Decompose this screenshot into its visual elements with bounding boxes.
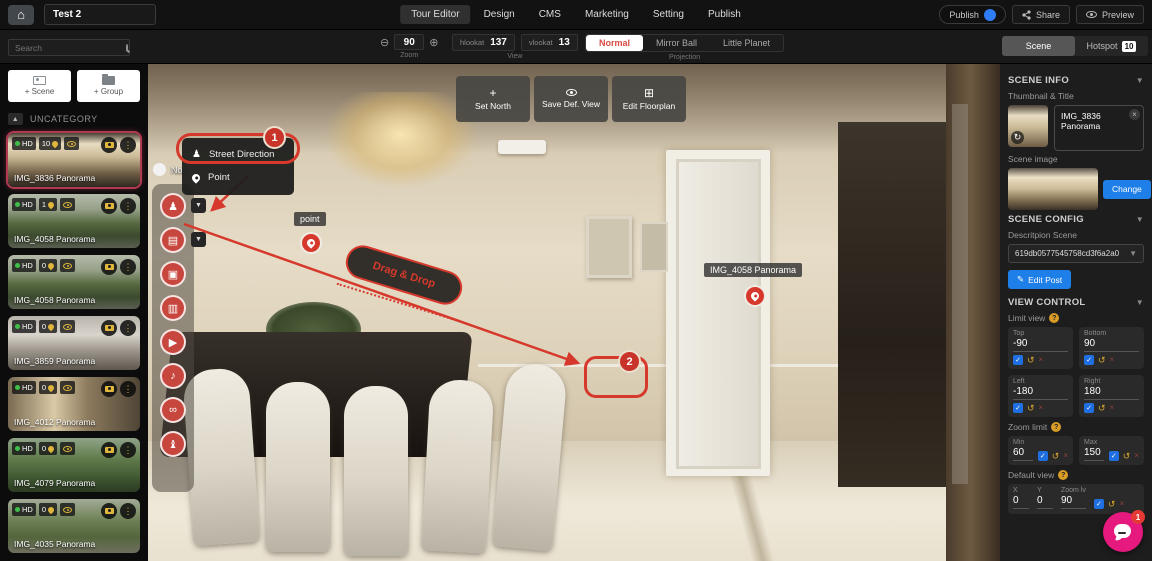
projection-mirror-ball[interactable]: Mirror Ball: [643, 35, 710, 51]
set-north-button[interactable]: +Set North: [456, 76, 530, 122]
default-view-text: Default view: [1008, 470, 1054, 480]
default-view-label: Y: [1037, 487, 1053, 494]
share-button[interactable]: Share: [1012, 5, 1070, 24]
floorplan-icon: ⊞: [644, 88, 654, 98]
hd-badge: HD: [12, 137, 36, 150]
view-control-title: VIEW CONTROL: [1008, 297, 1086, 308]
remove-icon[interactable]: ×: [1134, 452, 1139, 460]
point-label: Point: [208, 172, 230, 183]
checkbox-checked-icon[interactable]: ✓: [1038, 451, 1048, 461]
scene-list: HD10⋮IMG_3836 PanoramaHD1⋮IMG_4058 Panor…: [8, 133, 140, 553]
limit-view-text: Limit view: [1008, 313, 1045, 323]
eye-icon: [63, 385, 72, 391]
scene-card[interactable]: HD0⋮IMG_4012 Panorama: [8, 377, 140, 431]
limit-right: Right180✓↺×: [1079, 375, 1144, 417]
description-post-select[interactable]: 619db0577545758cd3f6a2a0 ▼: [1008, 244, 1144, 263]
set-cover-button[interactable]: [101, 381, 117, 397]
limit-label: Right: [1084, 378, 1139, 385]
eye-icon: [63, 507, 72, 513]
checkbox-checked-icon[interactable]: ✓: [1013, 355, 1023, 365]
scene-card-actions: ⋮: [101, 442, 136, 458]
zoom-limit-min: Min60✓↺×: [1008, 436, 1073, 465]
point-menu-item[interactable]: Point: [182, 166, 294, 189]
product-hotspot-icon[interactable]: ♝: [160, 431, 186, 457]
save-def-view-button[interactable]: Save Def. View: [534, 76, 608, 122]
eye-icon: [63, 324, 72, 330]
scene-link-label: IMG_4058 Panorama: [704, 263, 802, 277]
zoom-group: ⊖ 90 ⊕ Zoom: [380, 34, 438, 59]
street-direction-hotspot: ♟▼: [160, 193, 186, 219]
scene-card-actions: ⋮: [101, 198, 136, 214]
home-button[interactable]: ⌂: [8, 5, 34, 25]
panorama-ac-unit: [498, 140, 546, 154]
camera-icon: [105, 142, 114, 148]
tour-title-input[interactable]: [44, 4, 156, 25]
limit-bottom: Bottom90✓↺×: [1079, 327, 1144, 369]
limit-actions: ✓↺×: [1013, 355, 1068, 365]
vlookat-value: 13: [559, 37, 570, 48]
tab-cms[interactable]: CMS: [528, 5, 572, 24]
product-hotspot: ♝: [160, 431, 186, 457]
image-hotspot: ▣: [160, 261, 186, 287]
hotspot-count-badge: 10: [39, 137, 61, 150]
scene-menu-button[interactable]: ⋮: [120, 503, 136, 519]
set-cover-button[interactable]: [101, 137, 117, 153]
hotspot-count-badge: 0: [39, 320, 57, 333]
help-icon[interactable]: ?: [1058, 470, 1068, 480]
share-icon: [1022, 10, 1031, 20]
chat-bubble-icon: [1114, 524, 1131, 538]
scene-name: IMG_4058 Panorama: [14, 234, 95, 244]
hd-badge: HD: [12, 259, 36, 272]
zoom-limit-label: Zoom limit ?: [1008, 422, 1144, 432]
link-hotspot: ∞: [160, 397, 186, 423]
hd-badge: HD: [12, 442, 36, 455]
panorama-chair: [344, 386, 408, 556]
image-hotspot-icon[interactable]: ▣: [160, 261, 186, 287]
limit-value-input[interactable]: -90: [1013, 337, 1068, 352]
eye-icon: [63, 263, 72, 269]
panorama-mirror: [952, 104, 968, 484]
limit-top: Top-90✓↺×: [1008, 327, 1073, 369]
hotspot-count-badge: 0: [39, 381, 57, 394]
undo-icon[interactable]: ↺: [1098, 356, 1106, 365]
visibility-badge[interactable]: [60, 503, 75, 516]
step-1-badge: 1: [263, 126, 286, 149]
scene-link-pin[interactable]: [744, 285, 766, 307]
projection-normal[interactable]: Normal: [586, 35, 643, 51]
hd-label: HD: [22, 444, 33, 453]
remove-icon[interactable]: ×: [1119, 500, 1124, 508]
camera-icon: [105, 386, 114, 392]
visibility-badge[interactable]: [60, 381, 75, 394]
hlookat-label: hlookat: [460, 38, 484, 47]
zoom-limit-row: 150✓↺×: [1084, 446, 1139, 461]
hotspot-count: 0: [42, 322, 46, 331]
chat-widget-button[interactable]: 1: [1103, 512, 1143, 552]
add-group-button[interactable]: + Group: [77, 70, 140, 102]
panorama-wall-art: [586, 216, 632, 278]
chevron-down-icon[interactable]: ▼: [191, 198, 206, 213]
category-label: UNCATEGORY: [30, 114, 98, 124]
panorama-canvas[interactable]: +Set NorthSave Def. View⊞Edit Floorplan …: [148, 64, 1000, 561]
camera-icon: [105, 203, 114, 209]
hd-label: HD: [22, 322, 33, 331]
set-cover-button[interactable]: [101, 320, 117, 336]
scene-name: IMG_4058 Panorama: [14, 295, 95, 305]
zoom-out-button[interactable]: ⊖: [380, 36, 389, 49]
scene-badges: HD0: [12, 381, 75, 394]
article-hotspot: ▥: [160, 295, 186, 321]
zoom-limit-text: Zoom limit: [1008, 422, 1047, 432]
refresh-icon[interactable]: ↻: [1011, 131, 1024, 144]
edit-floorplan-label: Edit Floorplan: [623, 101, 675, 111]
set-cover-button[interactable]: [101, 259, 117, 275]
scene-card-actions: ⋮: [101, 381, 136, 397]
default-view-y: Y0: [1037, 487, 1053, 509]
chevron-down-icon: ▼: [1129, 249, 1137, 258]
limit-value-input[interactable]: 180: [1084, 385, 1139, 400]
clear-icon[interactable]: ×: [1129, 109, 1140, 120]
remove-icon[interactable]: ×: [1063, 452, 1068, 460]
hd-label: HD: [22, 383, 33, 392]
change-image-button[interactable]: Change: [1103, 180, 1151, 199]
panorama-chandelier: [326, 92, 476, 187]
north-toggle[interactable]: Nor: [153, 163, 186, 176]
remove-icon[interactable]: ×: [1110, 356, 1115, 364]
scene-name: IMG_3836 Panorama: [14, 173, 95, 183]
set-cover-button[interactable]: [101, 503, 117, 519]
camera-icon: [105, 447, 114, 453]
audio-hotspot-icon[interactable]: ♪: [160, 363, 186, 389]
camera-icon: [105, 508, 114, 514]
eye-icon: [67, 141, 76, 147]
view-group: hlookat 137 vlookat 13 View: [452, 34, 578, 60]
projection-little-planet[interactable]: Little Planet: [710, 35, 783, 51]
scene-image-preview: [1008, 168, 1098, 210]
scene-info-header[interactable]: SCENE INFO ▼: [1008, 75, 1144, 86]
collapse-icon[interactable]: ▲: [8, 113, 23, 125]
default-view-label: Zoom lv: [1061, 487, 1086, 494]
visibility-badge[interactable]: [60, 442, 75, 455]
limit-view-label: Limit view ?: [1008, 313, 1144, 323]
editor-toolbar: ⊖ 90 ⊕ Zoom hlookat 137 vlookat 13 View …: [0, 30, 1152, 64]
video-hotspot-icon[interactable]: ▶: [160, 329, 186, 355]
pin-icon: [47, 261, 55, 269]
limit-actions: ✓↺×: [1094, 499, 1124, 509]
panorama-door: [676, 159, 761, 469]
default-view-input[interactable]: 0: [1013, 494, 1029, 509]
scene-menu-button[interactable]: ⋮: [120, 442, 136, 458]
scene-badges: HD10: [12, 137, 79, 150]
undo-icon[interactable]: ↺: [1123, 452, 1131, 461]
tab-design[interactable]: Design: [473, 5, 526, 24]
remove-icon[interactable]: ×: [1110, 404, 1115, 412]
panorama-chair: [266, 382, 330, 552]
eye-icon: [63, 446, 72, 452]
hd-label: HD: [22, 200, 33, 209]
hotspot-toolbar: ♟▼▤▼▣▥▶♪∞♝: [152, 184, 194, 492]
default-view-zoom-lv: Zoom lv90: [1061, 487, 1086, 509]
visibility-badge[interactable]: [64, 137, 79, 150]
hotspot-count-badge: 0: [39, 442, 57, 455]
scene-sidebar: + Scene + Group ▲ UNCATEGORY HD10⋮IMG_38…: [0, 64, 148, 561]
scene-card[interactable]: HD0⋮IMG_4058 Panorama: [8, 255, 140, 309]
pencil-icon: ✎: [1017, 274, 1024, 285]
zoom-in-button[interactable]: ⊕: [429, 36, 438, 49]
eye-icon: [1086, 11, 1097, 18]
panorama-wall-art: [640, 222, 668, 272]
tab-publish[interactable]: Publish: [697, 5, 752, 24]
pin-icon: [47, 383, 55, 391]
scene-config-header[interactable]: SCENE CONFIG ▼: [1008, 214, 1144, 225]
scene-menu-button[interactable]: ⋮: [120, 320, 136, 336]
article-hotspot-icon[interactable]: ▥: [160, 295, 186, 321]
tab-tour-editor[interactable]: Tour Editor: [400, 5, 470, 24]
toggle-knob-icon: [984, 9, 996, 21]
zoom-limit-label: Min: [1013, 439, 1068, 446]
limit-actions: ✓↺×: [1013, 403, 1068, 413]
undo-icon[interactable]: ↺: [1108, 500, 1116, 509]
scene-image-label: Scene image: [1008, 154, 1144, 164]
zoom-limit-label: Max: [1084, 439, 1139, 446]
description-scene-label: Descritpion Scene: [1008, 230, 1144, 240]
scene-menu-button[interactable]: ⋮: [120, 198, 136, 214]
scene-card[interactable]: HD10⋮IMG_3836 Panorama: [8, 133, 140, 187]
view-control-header[interactable]: VIEW CONTROL ▼: [1008, 297, 1144, 308]
default-view-label: Default view ?: [1008, 470, 1144, 480]
undo-icon[interactable]: ↺: [1027, 404, 1035, 413]
hotspot-count: 0: [42, 261, 46, 270]
default-view-input[interactable]: 90: [1061, 494, 1086, 509]
street-direction-hotspot-icon[interactable]: ♟: [160, 193, 186, 219]
view-caption: View: [507, 53, 522, 60]
hd-label: HD: [22, 139, 33, 148]
topbar-actions: Publish Share Preview: [939, 5, 1144, 24]
post-id-value: 619db0577545758cd3f6a2a0: [1015, 249, 1119, 258]
checkbox-checked-icon[interactable]: ✓: [1094, 499, 1104, 509]
scene-card-actions: ⋮: [101, 259, 136, 275]
set-cover-button[interactable]: [101, 198, 117, 214]
zoom-caption: Zoom: [400, 52, 418, 59]
preview-label: Preview: [1102, 10, 1134, 20]
edit-post-label: Edit Post: [1028, 275, 1062, 285]
scene-info-title: SCENE INFO: [1008, 75, 1069, 86]
hotspot-count-badge: 0: [39, 503, 57, 516]
audio-hotspot: ♪: [160, 363, 186, 389]
help-icon[interactable]: ?: [1049, 313, 1059, 323]
remove-icon[interactable]: ×: [1039, 356, 1044, 364]
limit-value-input[interactable]: 90: [1084, 337, 1139, 352]
card-hotspot: ▤▼: [160, 227, 186, 253]
vlookat-field[interactable]: vlookat 13: [521, 34, 578, 51]
compass-icon: +: [489, 88, 496, 98]
scene-badges: HD1: [12, 198, 75, 211]
hd-label: HD: [22, 261, 33, 270]
add-scene-label: + Scene: [25, 87, 55, 96]
thumbnail-title-label: Thumbnail & Title: [1008, 91, 1144, 101]
hotspot-count-badge: 1: [39, 198, 57, 211]
scene-config-title: SCENE CONFIG: [1008, 214, 1084, 225]
projection-group: NormalMirror BallLittle Planet Projectio…: [585, 34, 784, 61]
eye-icon: [63, 202, 72, 208]
limit-label: Bottom: [1084, 330, 1139, 337]
video-hotspot: ▶: [160, 329, 186, 355]
hd-badge: HD: [12, 503, 36, 516]
projection-caption: Projection: [669, 54, 700, 61]
zoom-limit-max: Max150✓↺×: [1079, 436, 1144, 465]
toggle-knob-icon: [153, 163, 166, 176]
hlookat-field[interactable]: hlookat 137: [452, 34, 515, 51]
zoom-value[interactable]: 90: [394, 34, 424, 50]
eye-icon: [566, 89, 577, 96]
visibility-badge[interactable]: [60, 259, 75, 272]
scene-card[interactable]: HD0⋮IMG_3859 Panorama: [8, 316, 140, 370]
vlookat-label: vlookat: [529, 38, 553, 47]
tab-scene-label: Scene: [1026, 41, 1052, 51]
scene-menu-button[interactable]: ⋮: [120, 381, 136, 397]
inspector-panel: SCENE INFO ▼ Thumbnail & Title ↻ IMG_383…: [1000, 64, 1152, 561]
zoom-limit-row: 60✓↺×: [1013, 446, 1068, 461]
pin-icon: [47, 505, 55, 513]
scene-name: IMG_4012 Panorama: [14, 417, 95, 427]
limit-value-input[interactable]: -180: [1013, 385, 1068, 400]
point-pin-icon: [190, 172, 201, 183]
visibility-badge[interactable]: [60, 198, 75, 211]
pin-icon: [749, 290, 760, 301]
scene-title-input[interactable]: IMG_3836 Panorama ×: [1054, 105, 1144, 151]
hotspot-count-badge: 0: [39, 259, 57, 272]
edit-floorplan-button[interactable]: ⊞Edit Floorplan: [612, 76, 686, 122]
scene-name: IMG_4079 Panorama: [14, 478, 95, 488]
publish-toggle-label: Publish: [949, 10, 979, 20]
save-def-view-label: Save Def. View: [542, 99, 600, 109]
remove-icon[interactable]: ×: [1039, 404, 1044, 412]
hd-dot-icon: [15, 263, 20, 268]
hd-dot-icon: [15, 446, 20, 451]
panel-tabs: Scene Hotspot 10: [1002, 36, 1148, 56]
hd-label: HD: [22, 505, 33, 514]
tab-hotspot[interactable]: Hotspot 10: [1075, 36, 1148, 56]
point-hotspot-label: point: [294, 212, 326, 226]
limit-actions: ✓↺×: [1084, 403, 1139, 413]
pin-icon: [47, 444, 55, 452]
limit-label: Left: [1013, 378, 1068, 385]
tab-setting[interactable]: Setting: [642, 5, 695, 24]
edit-post-button[interactable]: ✎ Edit Post: [1008, 270, 1071, 289]
search-input[interactable]: [15, 43, 126, 53]
scene-title-value: IMG_3836 Panorama: [1061, 111, 1101, 131]
image-icon: [33, 76, 46, 85]
set-cover-button[interactable]: [101, 442, 117, 458]
limit-label: Top: [1013, 330, 1068, 337]
undo-icon[interactable]: ↺: [1098, 404, 1106, 413]
pin-icon: [47, 322, 55, 330]
chevron-down-icon[interactable]: ▼: [191, 232, 206, 247]
default-view-input[interactable]: 0: [1037, 494, 1053, 509]
hd-dot-icon: [15, 385, 20, 390]
checkbox-checked-icon[interactable]: ✓: [1013, 403, 1023, 413]
tab-hotspot-label: Hotspot: [1087, 41, 1118, 51]
top-bar: ⌂ Tour EditorDesignCMSMarketingSettingPu…: [0, 0, 1152, 30]
chevron-down-icon: ▼: [1136, 298, 1144, 307]
scene-menu-button[interactable]: ⋮: [120, 259, 136, 275]
hotspot-count: 1: [42, 200, 46, 209]
search-icon: [126, 44, 128, 51]
scene-badges: HD0: [12, 320, 75, 333]
point-hotspot-pin[interactable]: [300, 232, 322, 254]
scene-badges: HD0: [12, 259, 75, 272]
hd-dot-icon: [15, 141, 20, 146]
checkbox-checked-icon[interactable]: ✓: [1084, 355, 1094, 365]
hotspot-count-badge: 10: [1122, 41, 1137, 52]
scene-name: IMG_3859 Panorama: [14, 356, 95, 366]
scene-menu-button[interactable]: ⋮: [120, 137, 136, 153]
undo-icon[interactable]: ↺: [1027, 356, 1035, 365]
scene-thumbnail[interactable]: ↻: [1008, 105, 1048, 147]
limit-actions: ✓↺×: [1109, 451, 1139, 461]
camera-icon: [105, 264, 114, 270]
tab-marketing[interactable]: Marketing: [574, 5, 640, 24]
add-scene-button[interactable]: + Scene: [8, 70, 71, 102]
default-view-label: X: [1013, 487, 1029, 494]
card-hotspot-icon[interactable]: ▤: [160, 227, 186, 253]
preview-button[interactable]: Preview: [1076, 5, 1144, 24]
hd-badge: HD: [12, 381, 36, 394]
scene-name: IMG_4035 Panorama: [14, 539, 95, 549]
help-icon[interactable]: ?: [1051, 422, 1061, 432]
scene-badges: HD0: [12, 442, 75, 455]
set-north-label: Set North: [475, 101, 511, 111]
scene-badges: HD0: [12, 503, 75, 516]
chevron-down-icon: ▼: [1136, 215, 1144, 224]
scene-card[interactable]: HD0⋮IMG_4079 Panorama: [8, 438, 140, 492]
pin-icon: [51, 139, 59, 147]
chevron-down-icon: ▼: [1136, 76, 1144, 85]
link-hotspot-icon[interactable]: ∞: [160, 397, 186, 423]
scene-search[interactable]: [8, 39, 130, 56]
hlookat-value: 137: [490, 37, 507, 48]
limit-left: Left-180✓↺×: [1008, 375, 1073, 417]
tab-scene[interactable]: Scene: [1002, 36, 1075, 56]
hd-badge: HD: [12, 320, 36, 333]
step-2-badge: 2: [618, 350, 641, 373]
checkbox-checked-icon[interactable]: ✓: [1109, 451, 1119, 461]
scene-card[interactable]: HD0⋮IMG_4035 Panorama: [8, 499, 140, 553]
scene-card[interactable]: HD1⋮IMG_4058 Panorama: [8, 194, 140, 248]
category-row: ▲ UNCATEGORY: [8, 113, 140, 125]
share-label: Share: [1036, 10, 1060, 20]
default-view-x: X0: [1013, 487, 1029, 509]
folder-icon: [102, 76, 115, 85]
hd-dot-icon: [15, 202, 20, 207]
hotspot-count: 0: [42, 505, 46, 514]
visibility-badge[interactable]: [60, 320, 75, 333]
hd-dot-icon: [15, 507, 20, 512]
hotspot-count: 0: [42, 444, 46, 453]
pin-icon: [305, 237, 316, 248]
add-group-label: + Group: [94, 87, 123, 96]
undo-icon[interactable]: ↺: [1052, 452, 1060, 461]
chat-unread-badge: 1: [1131, 510, 1145, 524]
publish-toggle[interactable]: Publish: [939, 5, 1006, 24]
pin-icon: [47, 200, 55, 208]
checkbox-checked-icon[interactable]: ✓: [1084, 403, 1094, 413]
hotspot-count: 0: [42, 383, 46, 392]
zoom-limit-input[interactable]: 150: [1084, 446, 1104, 461]
limit-actions: ✓↺×: [1038, 451, 1068, 461]
zoom-limit-input[interactable]: 60: [1013, 446, 1033, 461]
